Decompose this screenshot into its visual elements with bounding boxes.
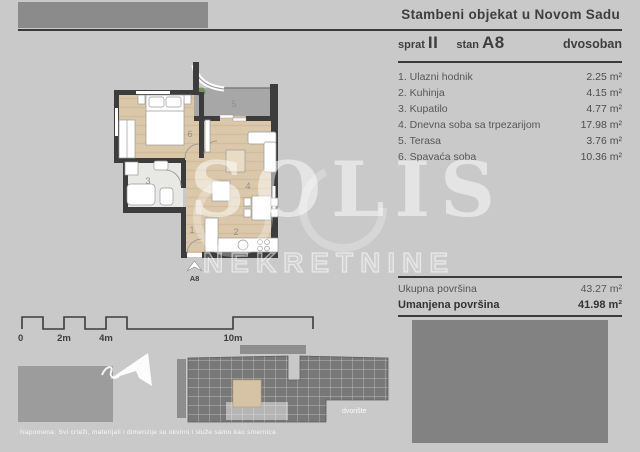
top-accent-bar xyxy=(18,2,208,28)
burner xyxy=(265,240,270,245)
chair xyxy=(244,209,251,217)
gross-area-value: 43.27 m² xyxy=(581,281,622,297)
entry-arrow-icon xyxy=(187,261,202,271)
room-number-4: 4 xyxy=(245,181,250,191)
unit-row-divider xyxy=(398,61,622,63)
building-site-plan: dvorište xyxy=(176,342,390,430)
bathtub xyxy=(127,184,155,205)
room-number-1: 1 xyxy=(189,225,194,235)
site-bar-top xyxy=(240,345,306,354)
room-number-3: 3 xyxy=(145,176,150,186)
washing-machine xyxy=(125,162,138,175)
disclaimer-text: Napomena: Svi crteži, materijali i dimen… xyxy=(20,429,276,436)
unit-value: A8 xyxy=(482,33,505,53)
room-name: 3. Kupatilo xyxy=(398,101,448,117)
totals-block: Ukupna površina 43.27 m² Umanjena površi… xyxy=(398,281,622,313)
room-name: 6. Spavaća soba xyxy=(398,149,476,165)
room-area: 2.25 m² xyxy=(586,69,622,85)
pillow xyxy=(149,97,164,107)
toilet xyxy=(160,188,173,205)
scale-label-2m: 2m xyxy=(57,333,71,344)
net-area-label: Umanjena površina xyxy=(398,297,499,313)
header-divider xyxy=(18,29,622,31)
unit-summary-row: sprat II stan A8 dvosoban xyxy=(398,33,622,59)
sink xyxy=(154,161,168,170)
nightstand xyxy=(184,95,191,104)
sofa-side xyxy=(264,142,276,172)
floor-label: sprat xyxy=(398,39,425,51)
floor-value: II xyxy=(428,33,438,53)
room-number-2: 2 xyxy=(233,227,238,237)
totals-divider-bottom xyxy=(398,315,622,317)
apartment-floor-plan: 1 2 3 4 5 6 A8 xyxy=(108,58,298,293)
coffee-table xyxy=(212,181,230,201)
gross-area-row: Ukupna površina 43.27 m² xyxy=(398,281,622,297)
room-row: 6. Spavaća soba 10.36 m² xyxy=(398,149,622,165)
room-row: 3. Kupatilo 4.77 m² xyxy=(398,101,622,117)
net-area-row: Umanjena površina 41.98 m² xyxy=(398,297,622,313)
room-name: 4. Dnevna soba sa trpezarijom xyxy=(398,117,540,133)
courtyard-label: dvorište xyxy=(342,408,367,415)
scale-label-4m: 4m xyxy=(99,333,113,344)
net-area-value: 41.98 m² xyxy=(578,297,622,313)
burner xyxy=(265,246,270,251)
room-row: 2. Kuhinja 4.15 m² xyxy=(398,85,622,101)
totals-divider-top xyxy=(398,276,622,278)
room-number-6: 6 xyxy=(187,129,192,139)
room-row: 5. Terasa 3.76 m² xyxy=(398,133,622,149)
highlighted-unit xyxy=(233,380,261,407)
room-number-5: 5 xyxy=(231,99,236,109)
scale-bar-line xyxy=(22,317,313,329)
nightstand xyxy=(138,95,145,104)
unit-label: stan xyxy=(456,39,479,51)
room-list: 1. Ulazni hodnik 2.25 m² 2. Kuhinja 4.15… xyxy=(398,69,622,165)
tv-shelf xyxy=(205,120,210,152)
room-area: 10.36 m² xyxy=(581,149,622,165)
burner xyxy=(258,240,263,245)
room-area: 3.76 m² xyxy=(586,133,622,149)
gross-area-label: Ukupna površina xyxy=(398,281,477,297)
room-area: 17.98 m² xyxy=(581,117,622,133)
chair xyxy=(271,198,278,206)
dining-table xyxy=(252,196,271,220)
apartment-type: dvosoban xyxy=(563,37,622,51)
room-row: 1. Ulazni hodnik 2.25 m² xyxy=(398,69,622,85)
entry-label: A8 xyxy=(190,274,200,283)
burner xyxy=(258,246,263,251)
rug xyxy=(226,150,245,172)
photo-placeholder-box xyxy=(412,320,608,443)
pillow xyxy=(166,97,181,107)
page-title: Stambeni objekat u Novom Sadu xyxy=(401,7,620,22)
chair xyxy=(271,209,278,217)
kitchen-cabinet xyxy=(205,218,218,252)
north-arrow-icon xyxy=(98,348,158,394)
room-area: 4.77 m² xyxy=(586,101,622,117)
room-name: 2. Kuhinja xyxy=(398,85,445,101)
kitchen-sink xyxy=(238,240,248,250)
room-row: 4. Dnevna soba sa trpezarijom 17.98 m² xyxy=(398,117,622,133)
site-bar-left xyxy=(177,359,186,418)
room-name: 5. Terasa xyxy=(398,133,441,149)
scale-label-0: 0 xyxy=(18,333,23,344)
room-name: 1. Ulazni hodnik xyxy=(398,69,473,85)
room-area: 4.15 m² xyxy=(586,85,622,101)
chair xyxy=(244,198,251,206)
scale-bar: 0 2m 4m 10m xyxy=(16,313,322,345)
